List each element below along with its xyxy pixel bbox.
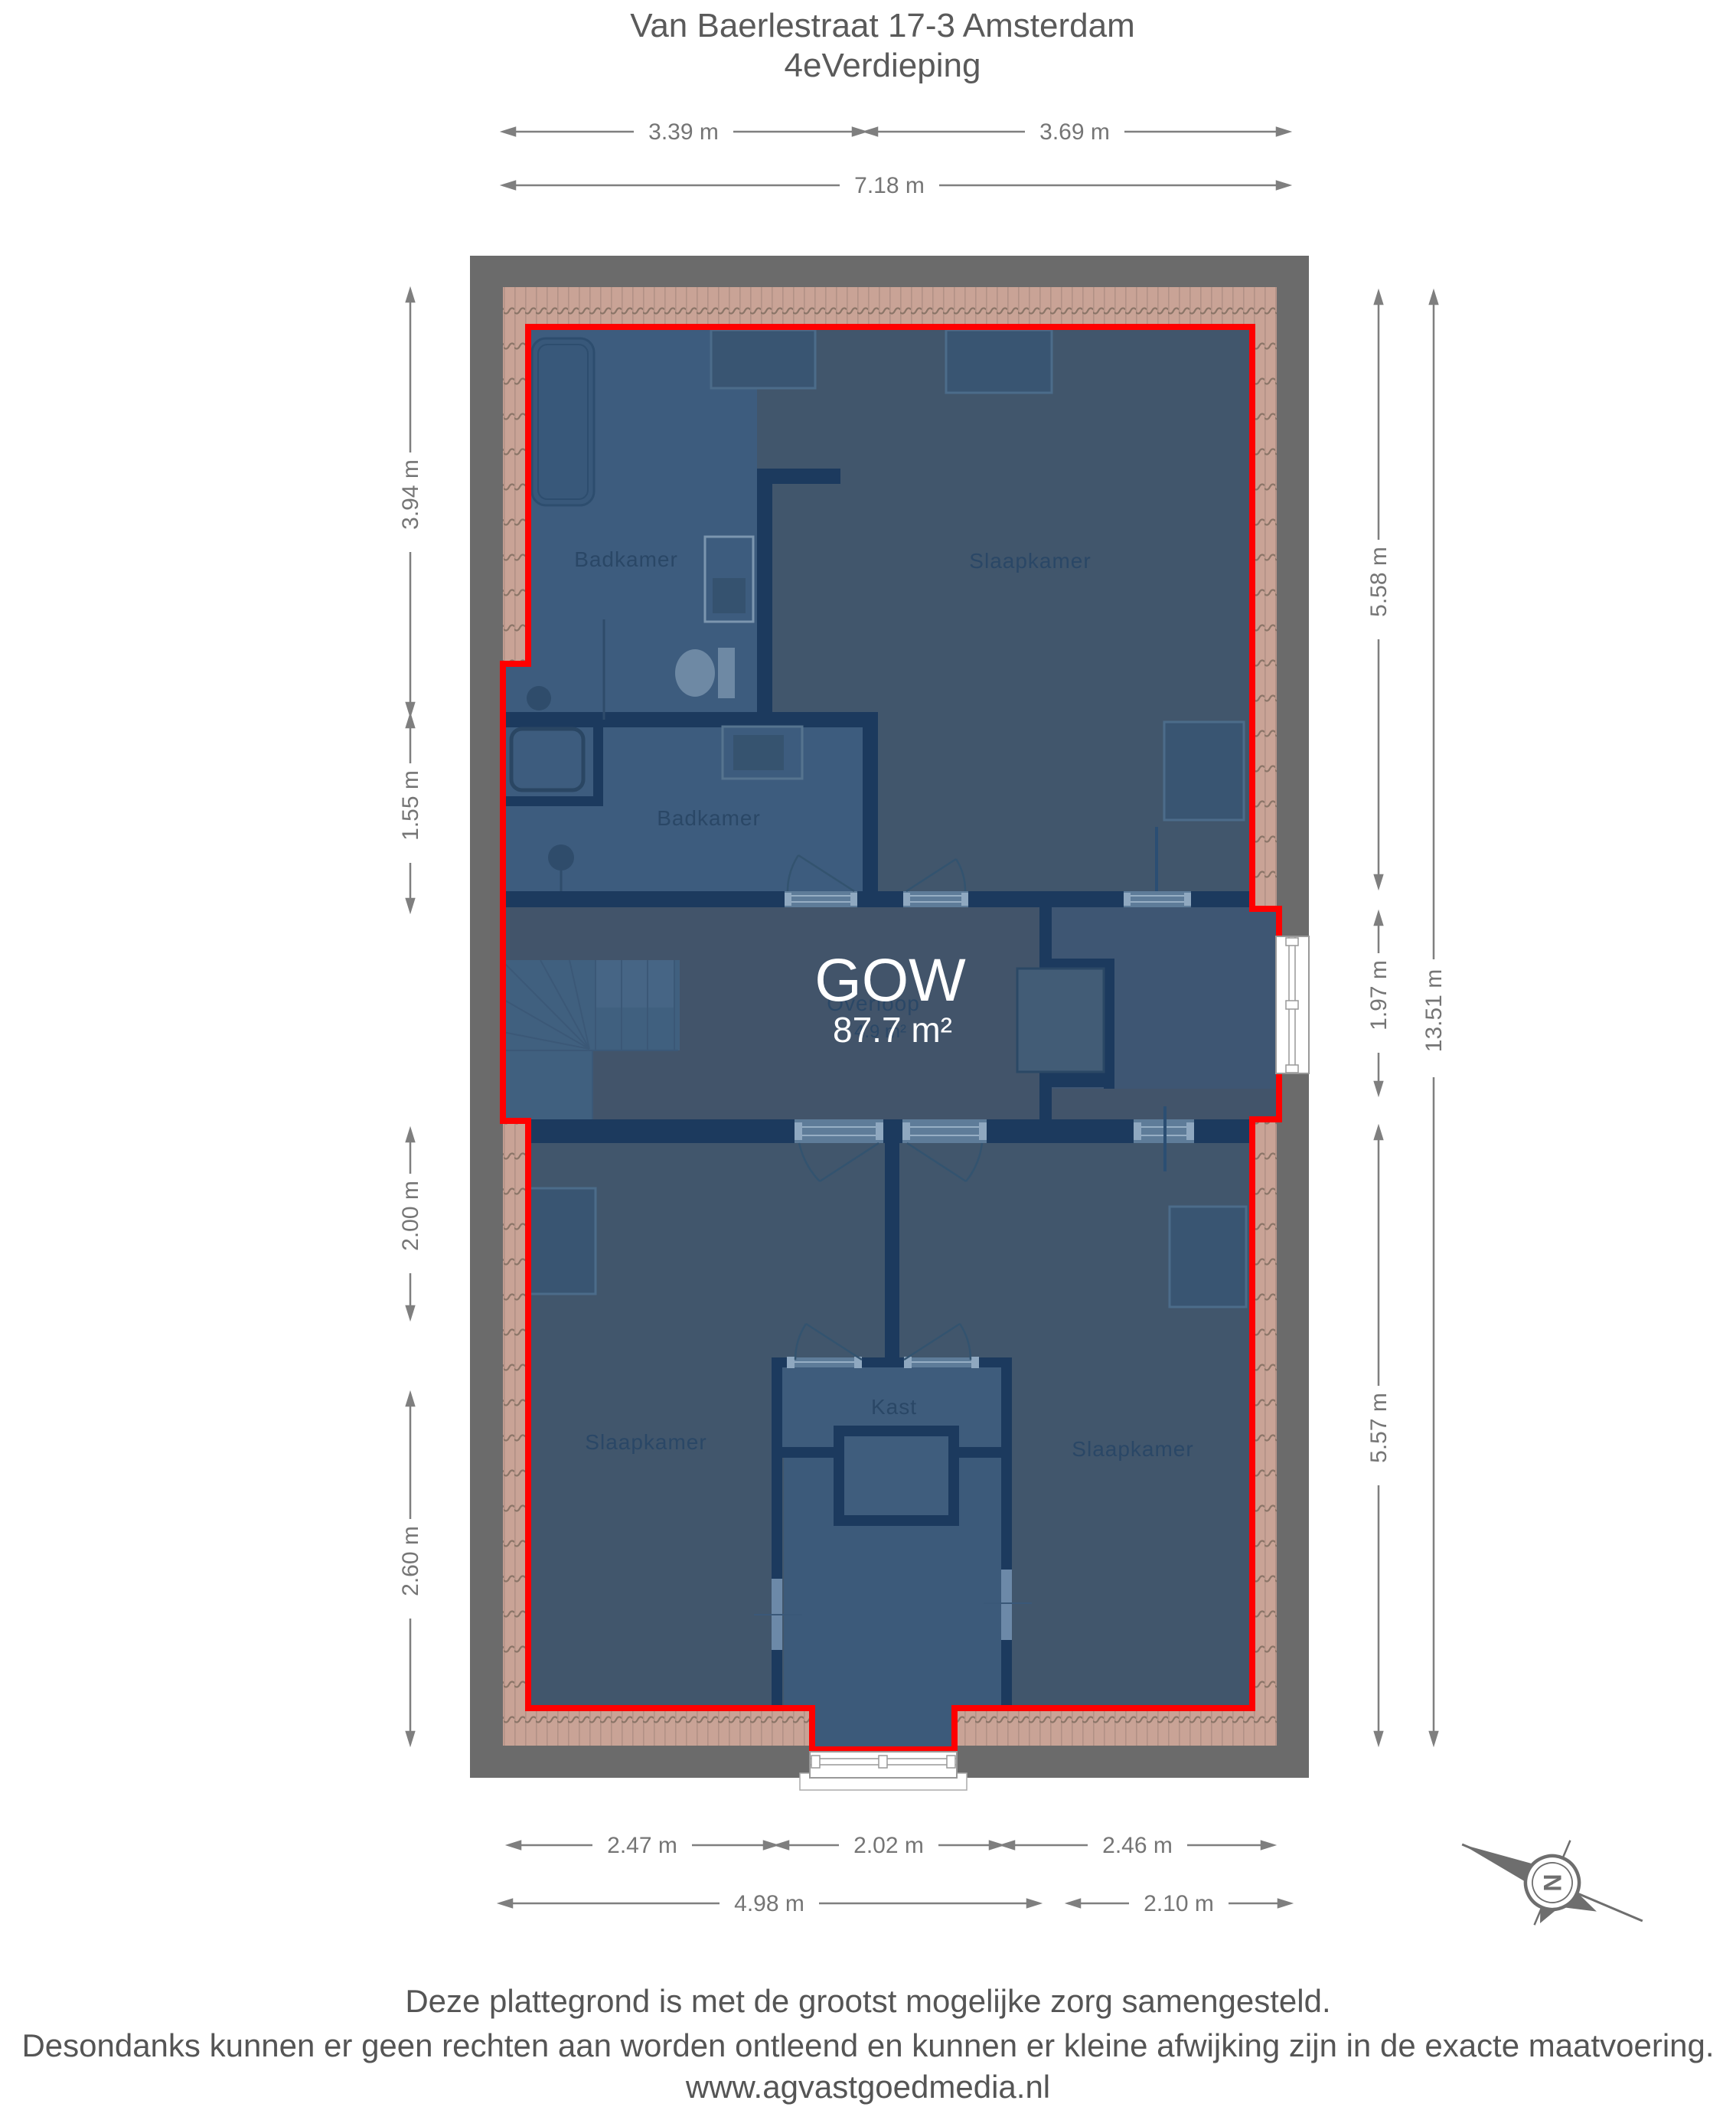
svg-text:2.00 m: 2.00 m: [398, 1181, 423, 1251]
svg-text:Van Baerlestraat 17-3 Amsterda: Van Baerlestraat 17-3 Amsterdam: [630, 7, 1135, 44]
svg-text:87.7 m²: 87.7 m²: [833, 1010, 952, 1050]
svg-text:3.39 m: 3.39 m: [648, 119, 719, 145]
svg-text:1.97 m: 1.97 m: [1366, 960, 1392, 1031]
svg-text:www.agvastgoedmedia.nl: www.agvastgoedmedia.nl: [685, 2069, 1050, 2105]
svg-text:1.55 m: 1.55 m: [398, 770, 423, 841]
svg-text:GOW: GOW: [814, 946, 966, 1014]
svg-text:Badkamer: Badkamer: [657, 806, 761, 830]
svg-text:Deze plattegrond is met de gro: Deze plattegrond is met de grootst mogel…: [405, 1983, 1330, 2019]
svg-text:5.58 m: 5.58 m: [1366, 547, 1392, 617]
svg-text:Slaapkamer: Slaapkamer: [585, 1430, 706, 1454]
svg-text:Slaapkamer: Slaapkamer: [1072, 1437, 1193, 1461]
svg-text:5.57 m: 5.57 m: [1366, 1393, 1392, 1463]
svg-text:Kast: Kast: [871, 1395, 917, 1419]
svg-text:7.18 m: 7.18 m: [854, 173, 925, 198]
svg-text:4.98 m: 4.98 m: [734, 1891, 804, 1916]
svg-text:2.60 m: 2.60 m: [398, 1526, 423, 1596]
svg-text:2.47 m: 2.47 m: [607, 1833, 677, 1858]
svg-text:2.02 m: 2.02 m: [853, 1833, 924, 1858]
svg-text:4eVerdieping: 4eVerdieping: [785, 47, 981, 84]
svg-text:N: N: [1539, 1873, 1566, 1891]
svg-text:Slaapkamer: Slaapkamer: [969, 549, 1091, 573]
svg-text:3.94 m: 3.94 m: [398, 459, 423, 530]
svg-text:2.46 m: 2.46 m: [1102, 1833, 1173, 1858]
svg-text:13.51 m: 13.51 m: [1421, 969, 1447, 1052]
svg-text:3.69 m: 3.69 m: [1039, 119, 1110, 145]
svg-text:2.10 m: 2.10 m: [1144, 1891, 1214, 1916]
svg-text:Desondanks kunnen er geen rech: Desondanks kunnen er geen rechten aan wo…: [21, 2027, 1714, 2063]
svg-text:Badkamer: Badkamer: [574, 547, 678, 571]
